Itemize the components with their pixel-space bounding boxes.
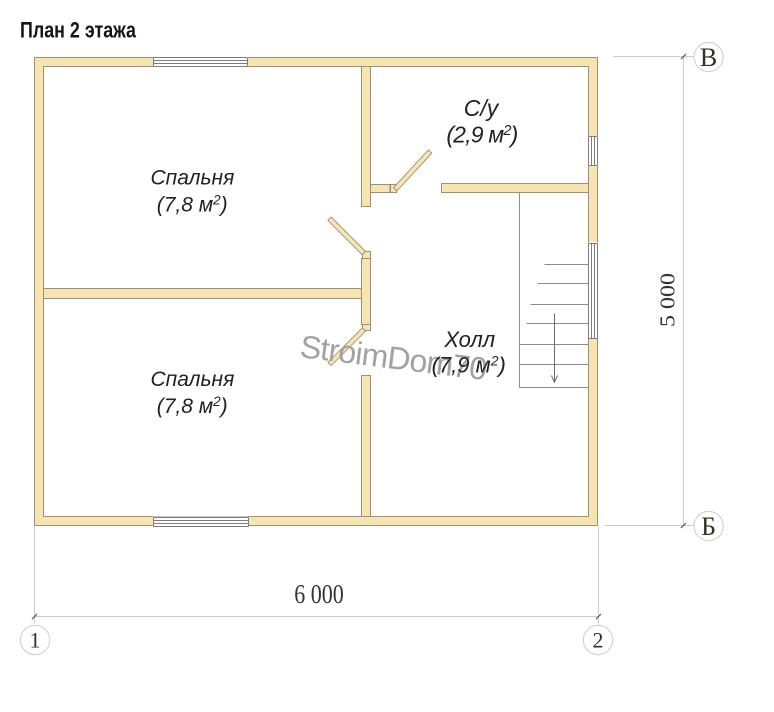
svg-text:Спальня: Спальня: [150, 368, 234, 391]
svg-text:(7,8 м2): (7,8 м2): [157, 394, 228, 418]
svg-text:В: В: [700, 43, 717, 72]
svg-text:Спальня: Спальня: [150, 166, 234, 189]
svg-text:С/у: С/у: [464, 95, 500, 121]
svg-text:5 000: 5 000: [655, 273, 679, 327]
svg-text:Холл: Холл: [443, 327, 495, 352]
svg-text:(7,9 м2): (7,9 м2): [432, 352, 506, 377]
svg-text:1: 1: [30, 628, 41, 653]
svg-text:План 2 этажа: План 2 этажа: [20, 18, 136, 43]
svg-text:2: 2: [593, 628, 604, 653]
svg-text:(7,8 м2): (7,8 м2): [157, 193, 228, 217]
svg-text:6 000: 6 000: [294, 579, 344, 609]
svg-text:Б: Б: [701, 512, 716, 541]
svg-text:(2,9 м2): (2,9 м2): [446, 122, 517, 148]
